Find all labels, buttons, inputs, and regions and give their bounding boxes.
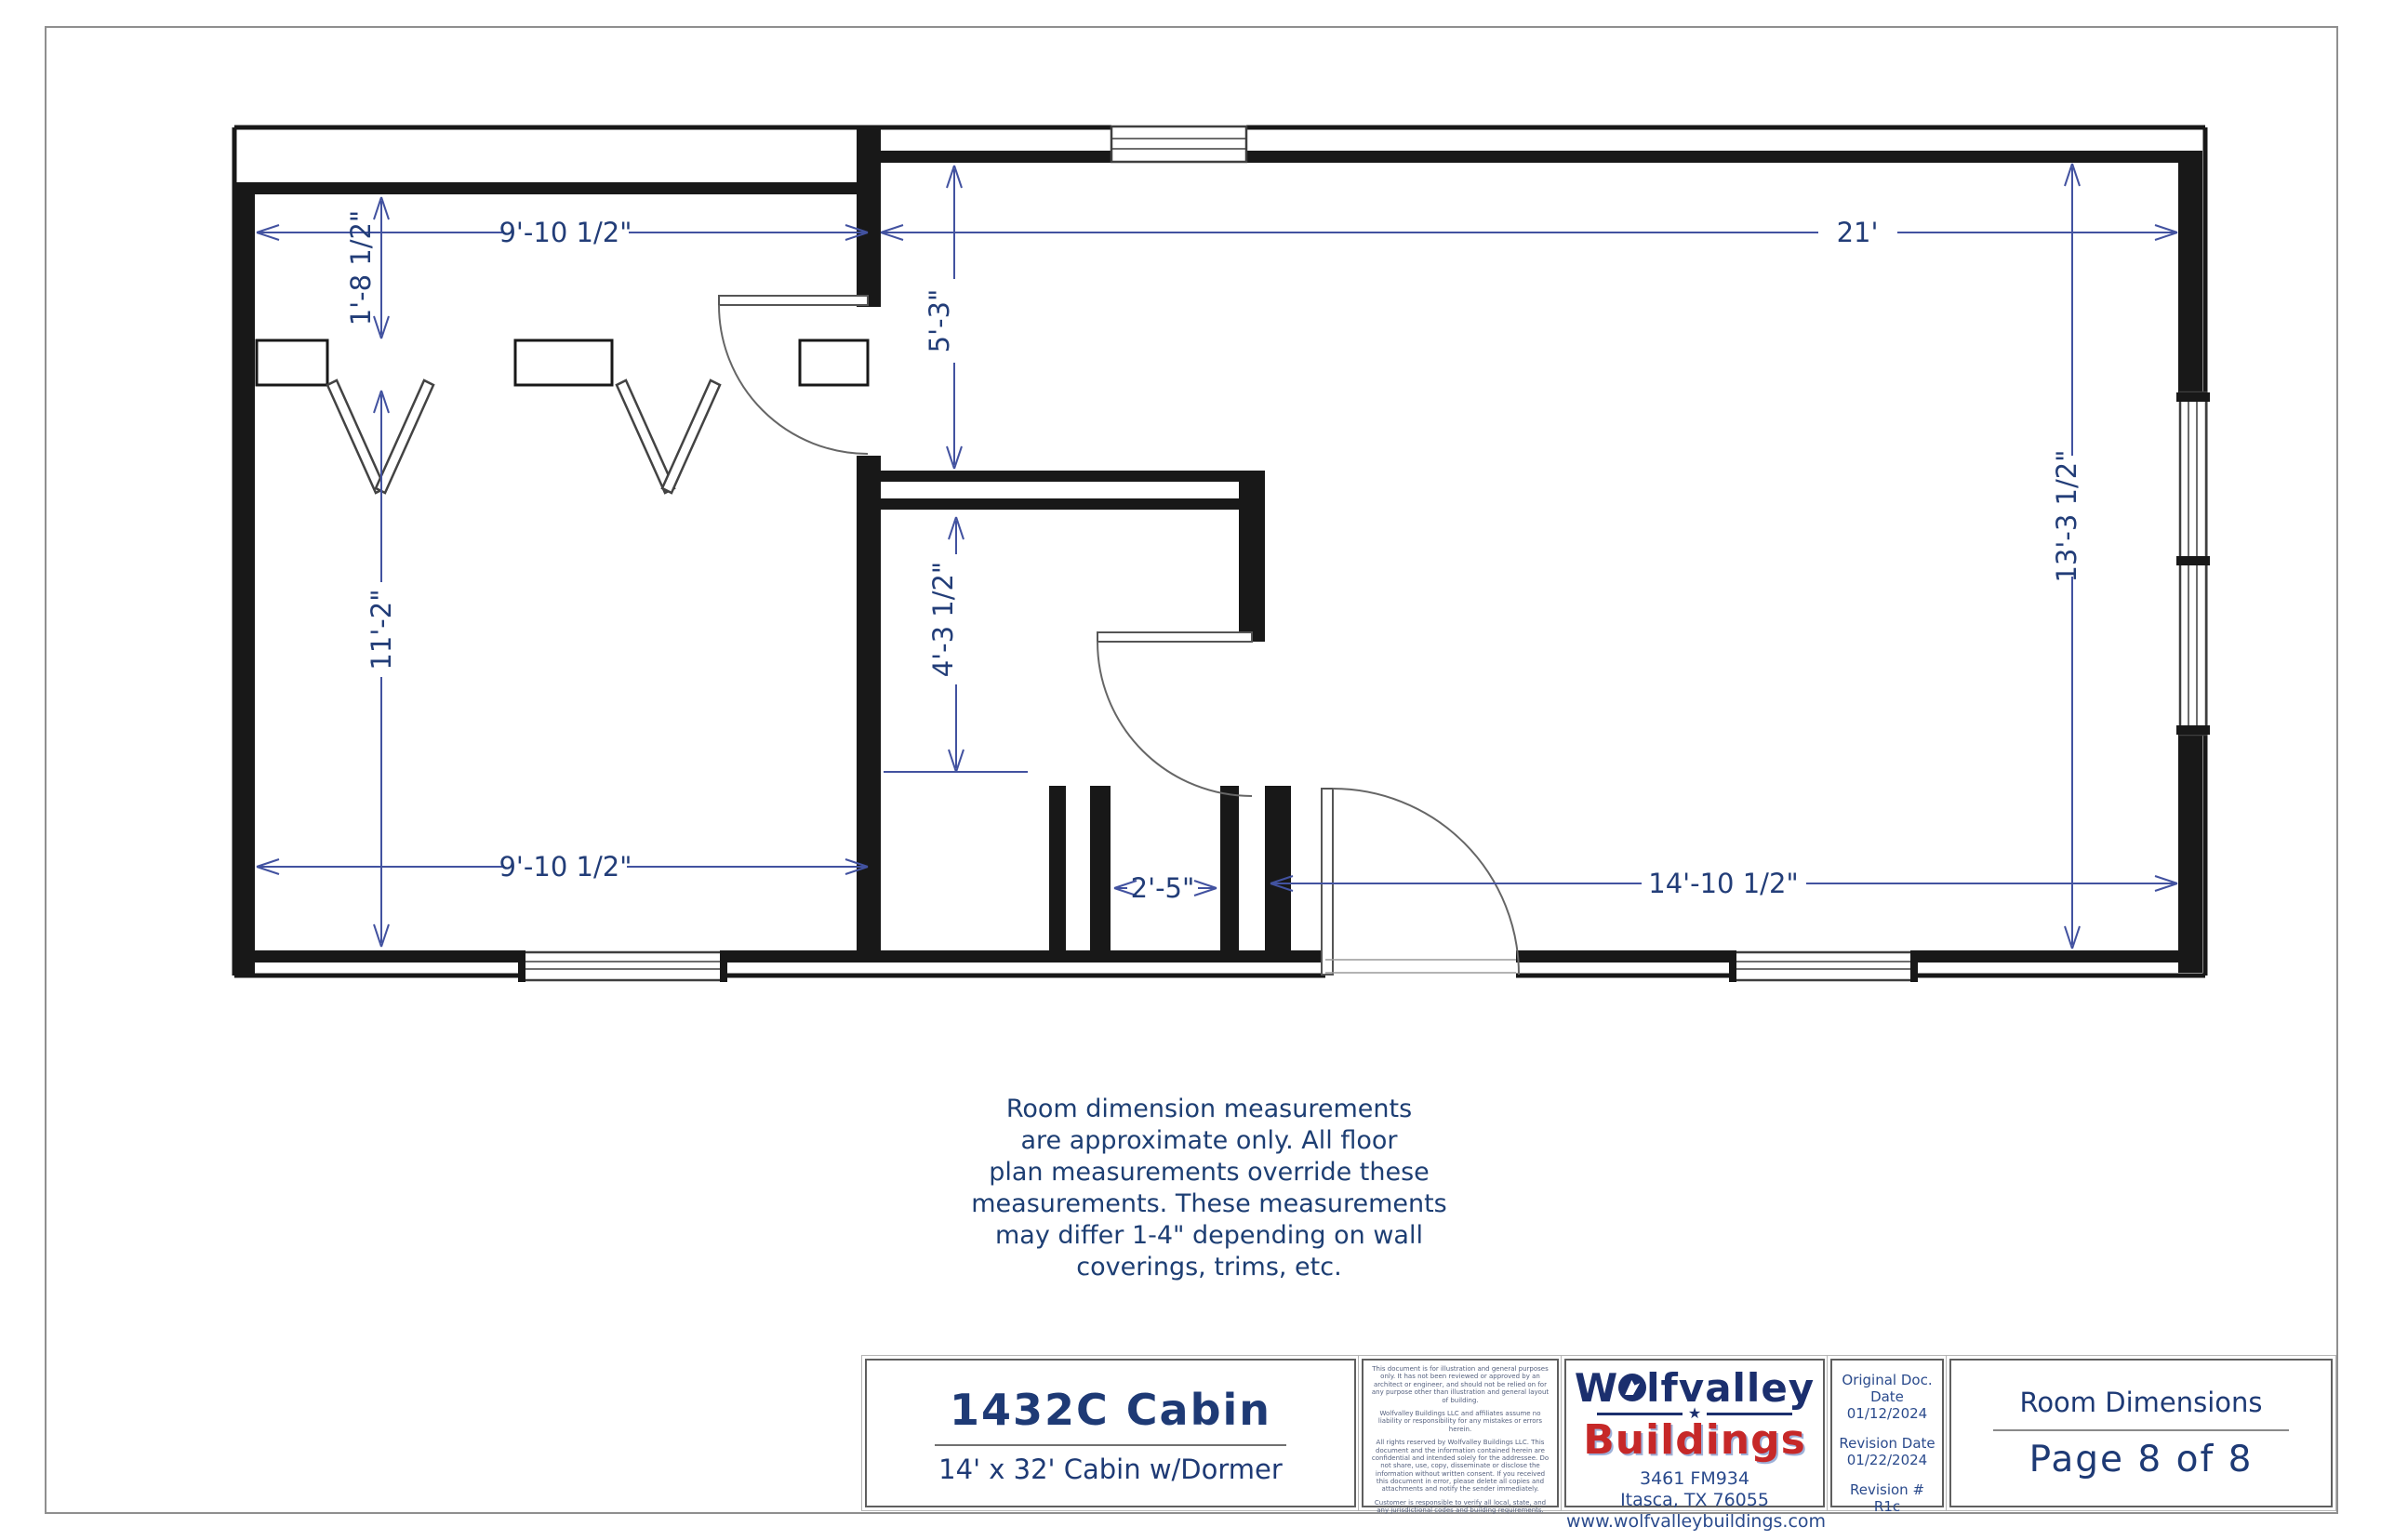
closet-front-walls bbox=[257, 340, 868, 385]
logo-text: W bbox=[1575, 1365, 1618, 1411]
divider bbox=[935, 1444, 1285, 1446]
entry-door bbox=[1322, 789, 1519, 975]
walls bbox=[234, 127, 2202, 976]
window-right-wall bbox=[2176, 392, 2210, 735]
dormer-window-top bbox=[1111, 126, 1246, 162]
revision-number-label: Revision # bbox=[1832, 1481, 1942, 1498]
window-bottom-right bbox=[1729, 950, 1918, 982]
revision-date-value: 01/22/2024 bbox=[1832, 1452, 1942, 1468]
disclaimer-paragraph: Wolfvalley Buildings LLC and affiliates … bbox=[1369, 1410, 1551, 1433]
floor-plan-drawing: 9'-10 1/2" 21' 1'-8 1/2" 5'-3" 4'-3 1/2"… bbox=[0, 0, 2381, 1097]
logo-address1: 3461 FM934 bbox=[1566, 1468, 1823, 1490]
dim-left-width-top: 9'-10 1/2" bbox=[499, 217, 632, 248]
logo-buildings: Buildings bbox=[1566, 1420, 1823, 1461]
sheet-info-panel: Room Dimensions Page 8 of 8 bbox=[1949, 1359, 2333, 1507]
dim-north-to-bath: 5'-3" bbox=[924, 289, 955, 353]
bifold-door-right bbox=[617, 380, 720, 493]
window-bottom-left bbox=[518, 950, 727, 982]
exterior-wall-outline bbox=[234, 127, 2205, 976]
wolf-logo-o-icon bbox=[1618, 1374, 1646, 1401]
disclaimer-paragraph: Customer is responsible to verify all lo… bbox=[1369, 1499, 1551, 1515]
note-line: are approximate only. All floor bbox=[949, 1125, 1470, 1157]
floor-plan-sheet: { "plan": { "dims": { "closet_depth": "1… bbox=[0, 0, 2381, 1540]
dimension-arrowheads bbox=[257, 164, 2177, 949]
bathroom-door bbox=[1097, 632, 1252, 796]
logo-wolfvalley: Wlfvalley bbox=[1566, 1370, 1823, 1407]
dim-bath-depth: 4'-3 1/2" bbox=[927, 562, 959, 678]
legal-panel: This document is for illustration and ge… bbox=[1362, 1359, 1559, 1507]
dimension-labels: 9'-10 1/2" 21' 1'-8 1/2" 5'-3" 4'-3 1/2"… bbox=[345, 210, 2082, 904]
model-panel: 1432C Cabin 14' x 32' Cabin w/Dormer bbox=[865, 1359, 1356, 1507]
dim-left-height: 11'-2" bbox=[366, 589, 397, 670]
dim-alcove-width: 2'-5" bbox=[1131, 872, 1195, 904]
model-subtitle: 14' x 32' Cabin w/Dormer bbox=[867, 1454, 1354, 1485]
note-line: coverings, trims, etc. bbox=[949, 1252, 1470, 1283]
page-number: Page 8 of 8 bbox=[1951, 1439, 2331, 1480]
dim-great-width-bottom: 14'-10 1/2" bbox=[1648, 868, 1798, 899]
logo-address2: Itasca, TX 76055 bbox=[1566, 1490, 1823, 1511]
logo-website: www.wolfvalleybuildings.com bbox=[1566, 1511, 1823, 1533]
original-doc-date-value: 01/12/2024 bbox=[1832, 1405, 1942, 1422]
original-doc-date-label: Original Doc. Date bbox=[1832, 1372, 1942, 1405]
title-block: 1432C Cabin 14' x 32' Cabin w/Dormer Thi… bbox=[858, 1353, 2338, 1512]
logo-panel: Wlfvalley ★ Buildings 3461 FM934 Itasca,… bbox=[1564, 1359, 1825, 1507]
divider bbox=[1993, 1429, 2289, 1431]
room-dimension-note: Room dimension measurements are approxim… bbox=[949, 1094, 1470, 1283]
revision-number-value: R1c bbox=[1832, 1498, 1942, 1515]
note-line: Room dimension measurements bbox=[949, 1094, 1470, 1125]
disclaimer-paragraph: This document is for illustration and ge… bbox=[1369, 1365, 1551, 1404]
dimension-lines bbox=[257, 164, 2177, 949]
dim-left-width-bottom: 9'-10 1/2" bbox=[499, 851, 632, 883]
dates-panel: Original Doc. Date 01/12/2024 Revision D… bbox=[1830, 1359, 1944, 1507]
note-line: may differ 1-4" depending on wall bbox=[949, 1220, 1470, 1252]
sheet-title: Room Dimensions bbox=[1951, 1387, 2331, 1418]
revision-date-label: Revision Date bbox=[1832, 1435, 1942, 1452]
note-line: measurements. These measurements bbox=[949, 1188, 1470, 1220]
logo-text: lfvalley bbox=[1646, 1365, 1815, 1411]
dim-closet-depth: 1'-8 1/2" bbox=[345, 210, 377, 326]
disclaimer-paragraph: All rights reserved by Wolfvalley Buildi… bbox=[1369, 1439, 1551, 1494]
dim-great-width: 21' bbox=[1837, 217, 1879, 248]
model-name: 1432C Cabin bbox=[867, 1385, 1354, 1435]
dim-great-height: 13'-3 1/2" bbox=[2051, 449, 2082, 582]
note-line: plan measurements override these bbox=[949, 1157, 1470, 1188]
